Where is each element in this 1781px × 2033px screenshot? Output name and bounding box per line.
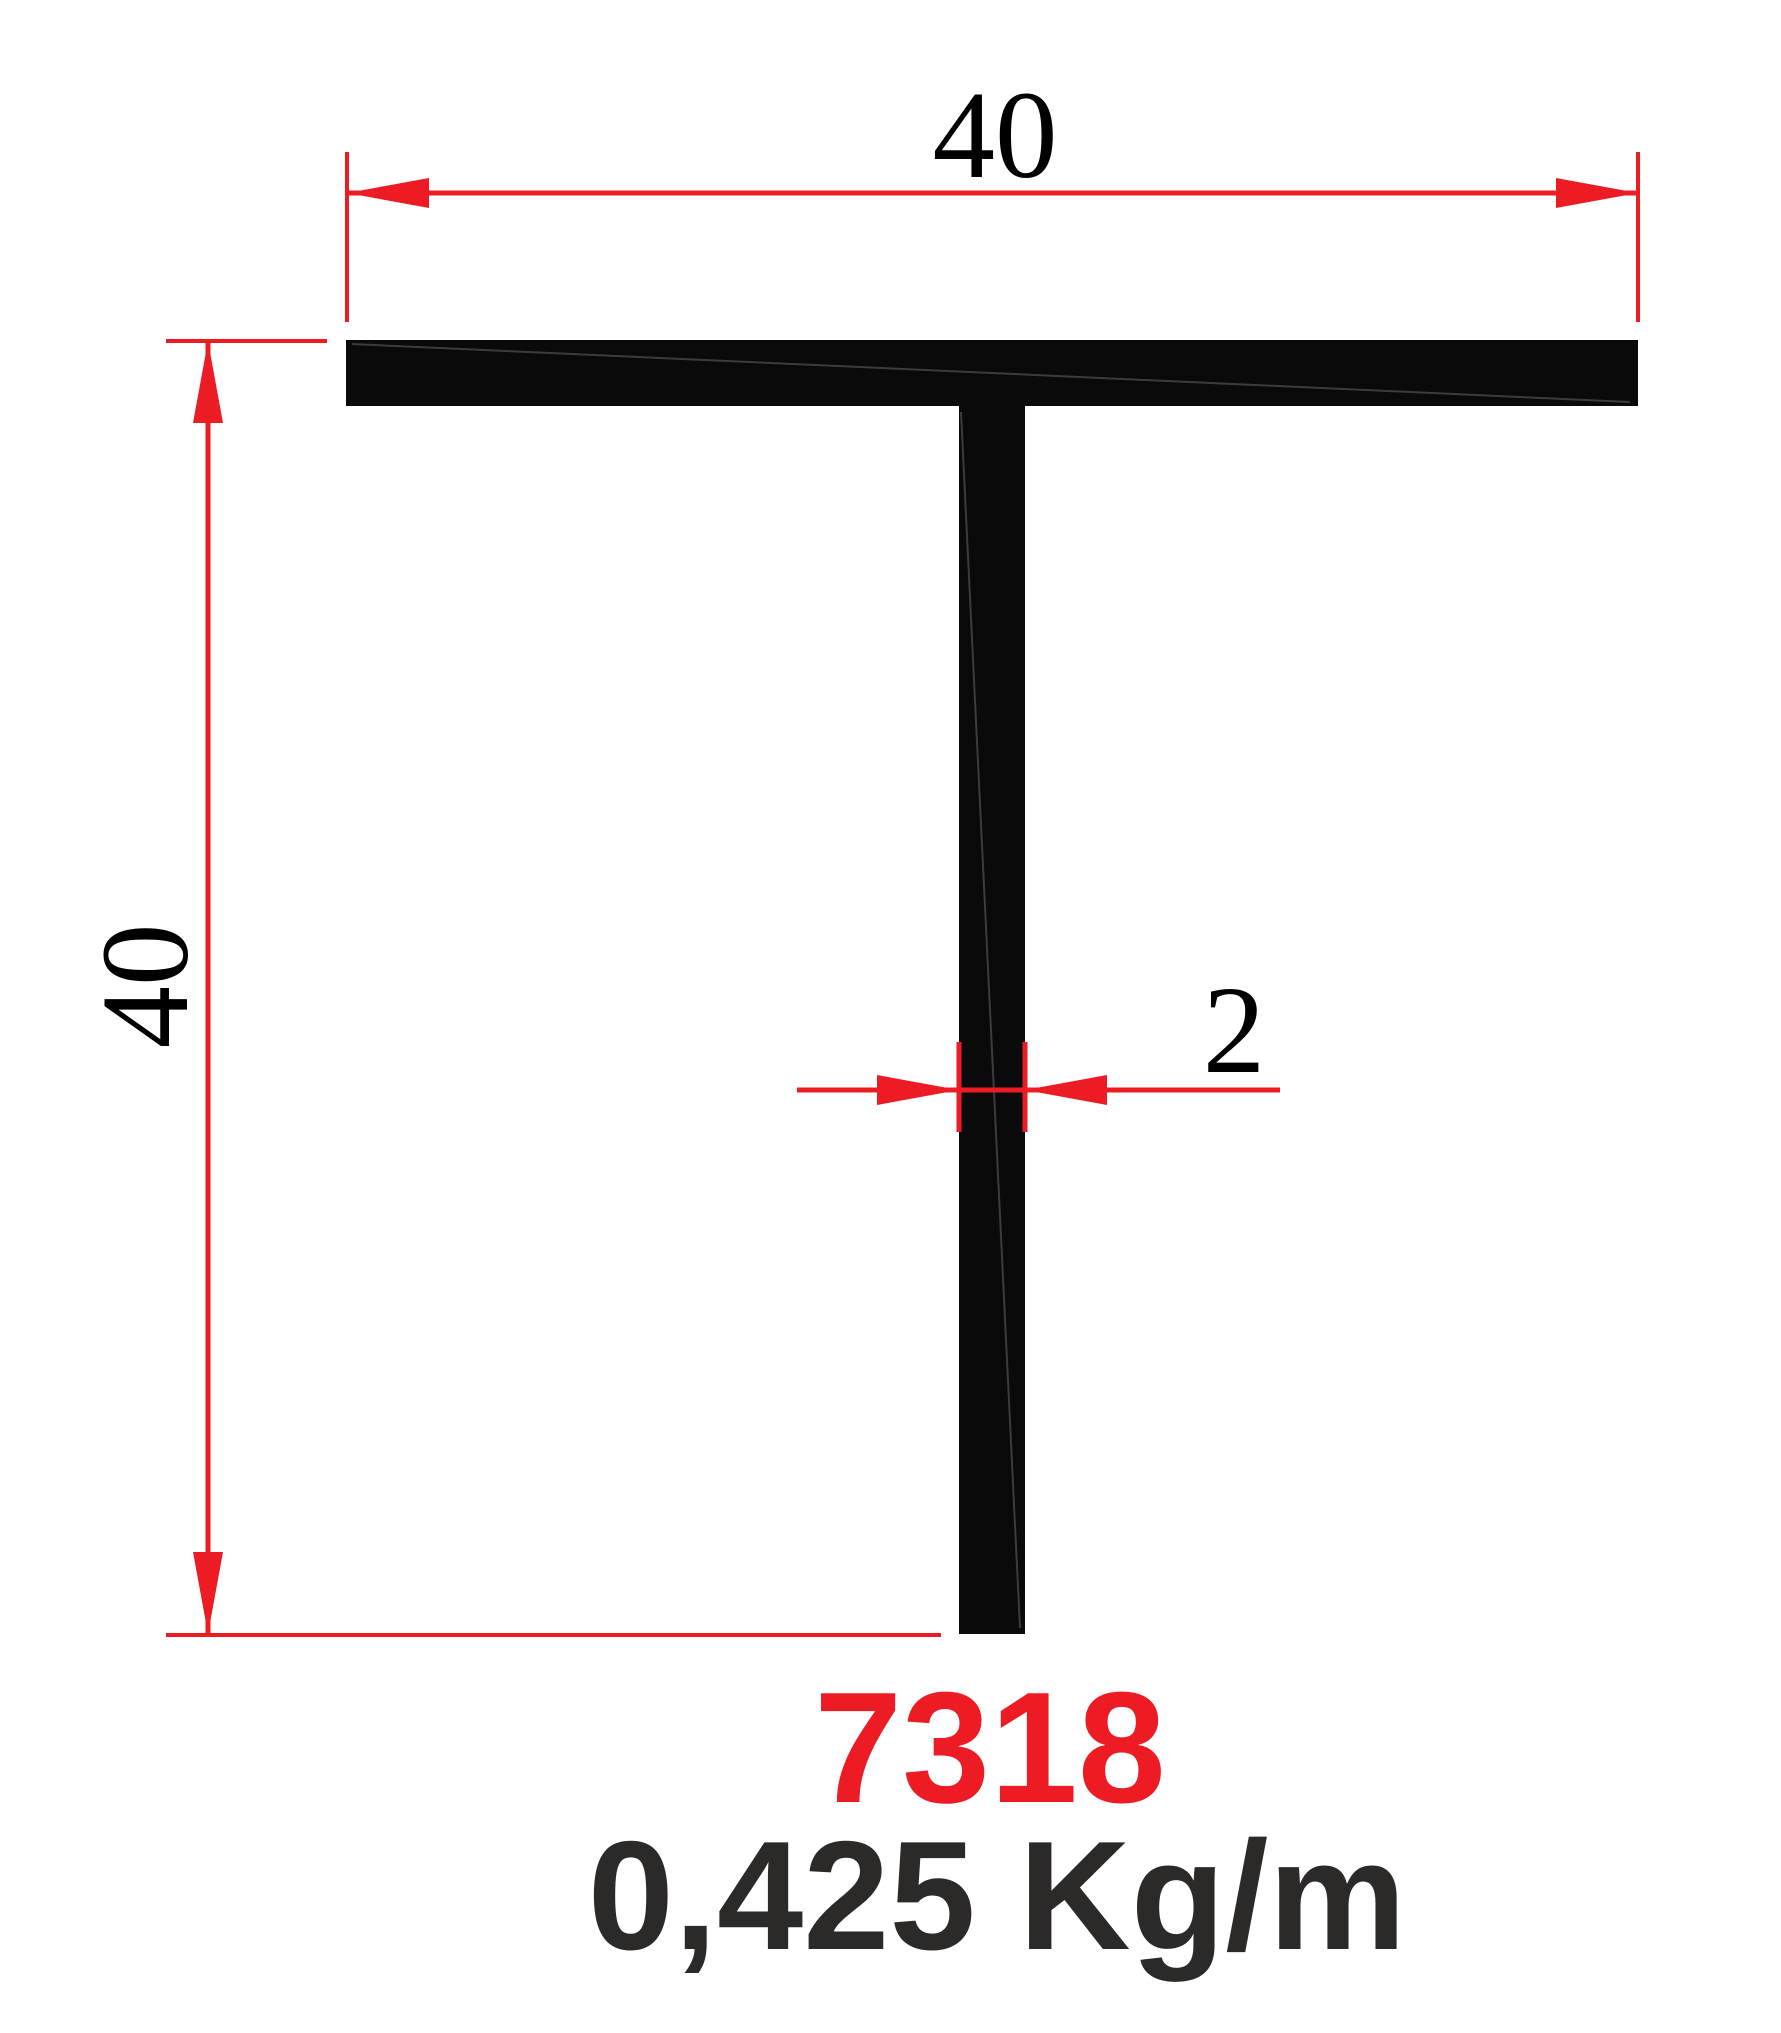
height-arrow-down-icon	[193, 1552, 223, 1634]
width-dimension: 40	[347, 67, 1638, 322]
width-dimension-value: 40	[933, 67, 1058, 205]
thickness-dimension-value: 2	[1203, 962, 1266, 1100]
thickness-dimension: 2	[797, 962, 1280, 1132]
height-dimension: 40	[77, 341, 941, 1635]
t-profile-shape	[346, 340, 1638, 1634]
height-arrow-up-icon	[193, 341, 223, 423]
unit-weight-label: 0,425 Kg/m	[588, 1809, 1406, 1982]
width-arrow-right-icon	[1556, 178, 1638, 208]
height-dimension-value: 40	[77, 924, 215, 1049]
t-profile-technical-drawing: 40 40 2 7318 0,425 Kg/m	[0, 0, 1781, 2033]
thickness-arrow-left-icon	[877, 1075, 959, 1105]
thickness-arrow-right-icon	[1025, 1075, 1107, 1105]
width-arrow-left-icon	[347, 178, 429, 208]
drawing-canvas: 40 40 2 7318 0,425 Kg/m	[0, 0, 1781, 2033]
